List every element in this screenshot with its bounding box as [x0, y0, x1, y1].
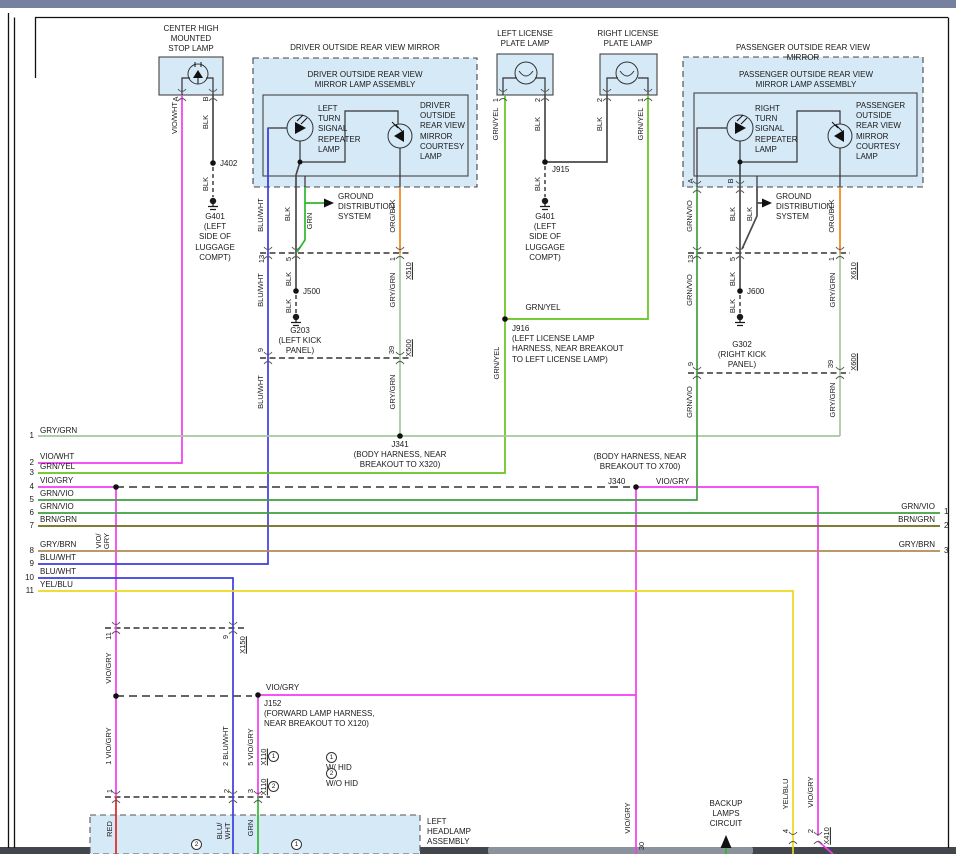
pin-1-x510: 1	[389, 257, 397, 261]
ground-distribution-label-passenger: GROUND DISTRIBUTION SYSTEM	[776, 192, 832, 223]
wire-label-blu-wht-2line: BLU/ WHT	[216, 822, 233, 839]
wiring-diagram-canvas	[0, 0, 956, 854]
pin-9-x600: 9	[687, 362, 695, 366]
bus-num-8: 8	[20, 546, 34, 555]
ground-dist-arrow-passenger	[762, 199, 772, 208]
bus-num-5: 5	[20, 495, 34, 504]
pin-2-x410: 2	[807, 829, 815, 833]
junction-j340-note: (BODY HARNESS, NEAR BREAKOUT TO X700)	[594, 452, 687, 472]
right-license-title: RIGHT LICENSE PLATE LAMP	[597, 29, 658, 49]
wire-label-blk-j600: BLK	[729, 299, 737, 313]
ground-symbol-g203	[291, 314, 301, 325]
pin-1-x610: 1	[828, 257, 836, 261]
wire-label-org-blk-pass: ORG/BLK	[828, 199, 836, 232]
left-headlamp-title: LEFT HEADLAMP ASSEMBLY	[427, 817, 471, 848]
bus-num-1: 1	[20, 431, 34, 440]
passenger-assembly-title: PASSENGER OUTSIDE REAR VIEW MIRROR LAMP …	[739, 70, 873, 90]
wire-label-blk-j915: BLK	[534, 177, 542, 191]
ground-symbol-g401-left	[208, 198, 218, 209]
wire10-blu-wht	[38, 578, 233, 854]
junction-j152-label: J152 (FORWARD LAMP HARNESS, NEAR BREAKOU…	[264, 699, 375, 730]
wire-label-blk-j500: BLK	[285, 299, 293, 313]
pin-11-x150: 11	[105, 632, 113, 640]
connector-x510-label: X510	[405, 262, 413, 280]
right-bus-num-3: 3	[944, 546, 948, 555]
component-boxes	[90, 54, 923, 854]
ground-symbol-g302	[735, 314, 745, 325]
chmsl-title: CENTER HIGH MOUNTED STOP LAMP	[163, 24, 218, 55]
headlamp-variant-1-mark: 1	[291, 839, 302, 850]
pin-2-left-license: 2	[534, 98, 542, 102]
passenger-courtesy-lamp-label: PASSENGER OUTSIDE REAR VIEW MIRROR COURT…	[856, 101, 905, 162]
bus-num-11: 11	[20, 586, 34, 595]
wire-label-blu-wht-driver: BLU/WHT	[257, 198, 265, 232]
right-bus-label-3: GRY/BRN	[855, 540, 935, 549]
wire-label-gry-grn-driver: GRY/GRN	[389, 273, 397, 308]
junction-j916-label: J916 (LEFT LICENSE LAMP HARNESS, NEAR BR…	[512, 324, 624, 365]
bus-label-8: GRY/BRN	[40, 540, 76, 549]
ground-g203-label: G203 (LEFT KICK PANEL)	[279, 326, 322, 357]
bus-num-6: 6	[20, 508, 34, 517]
wire-label-blk-below-x610: BLK	[729, 272, 737, 286]
pin-1-right-license: 1	[637, 98, 645, 102]
bus-num-7: 7	[20, 521, 34, 530]
wiring-diagram-page: CENTER HIGH MOUNTED STOP LAMP DRIVER OUT…	[0, 0, 956, 854]
grn-yel-right-license	[505, 95, 648, 319]
wire4-right-color-label: VIO/GRY	[656, 477, 689, 487]
bus-num-4: 4	[20, 482, 34, 491]
connector-x600-label: X600	[850, 353, 858, 371]
bus-label-1: GRY/GRN	[40, 426, 77, 435]
junction-j340-label: J340	[608, 477, 625, 487]
x110-variant-1-mark: 1	[268, 751, 279, 762]
wire-label-blk-chmsl: BLK	[202, 115, 210, 129]
backup-lamps-arrow	[721, 835, 732, 848]
wire-label-blk-left-license: BLK	[534, 117, 542, 131]
connector-x410-label: X410	[823, 827, 831, 845]
wire-label-vio-gry-bottom: VIO/GRY	[624, 802, 632, 833]
passenger-mirror-title: PASSENGER OUTSIDE REAR VIEW MIRROR	[727, 43, 880, 63]
wire-label-vio-gry-2line: VIO/ GRY	[95, 533, 112, 549]
dashed-ground-leads	[213, 166, 740, 313]
right-bus-num-2: 2	[944, 521, 948, 530]
x110-variant-2-mark: 2	[268, 781, 279, 792]
right-bus-label-1: GRN/VIO	[855, 502, 935, 511]
bus-label-3: GRN/YEL	[40, 462, 75, 471]
wire-label-grn-yel-below-j916: GRN/YEL	[493, 347, 501, 380]
connector-x500-label: X500	[405, 339, 413, 357]
pin-1-x110: 1	[106, 789, 114, 793]
inline-connectors	[105, 253, 850, 797]
wire-label-vio-gry-x410: VIO/GRY	[807, 776, 815, 807]
connector-x610-label: X610	[850, 262, 858, 280]
pin-13-x610: 13	[687, 255, 695, 263]
wire-label-vio-gry-below-x150: VIO/GRY	[105, 652, 113, 683]
driver-mirror-title: DRIVER OUTSIDE REAR VIEW MIRROR	[290, 43, 440, 53]
junction-j341-label: J341 (BODY HARNESS, NEAR BREAKOUT TO X32…	[354, 440, 447, 471]
wire-label-blk-driver: BLK	[284, 207, 292, 221]
legend-without-hid: 2 W/O HID	[326, 758, 358, 789]
wire-label-1-vio-gry: 1 VIO/GRY	[105, 727, 113, 764]
ground-g401-left-label: G401 (LEFT SIDE OF LUGGAGE COMPT)	[195, 212, 235, 263]
bus-label-4: VIO/GRY	[40, 476, 73, 485]
wire-label-grn-vio-mid: GRN/VIO	[686, 274, 694, 306]
pin-5-x510: 5	[285, 257, 293, 261]
junction-j500-label: J500	[303, 287, 320, 297]
wire-label-blk-right-license: BLK	[596, 117, 604, 131]
pin-4-x410: 4	[782, 829, 790, 833]
pin-5-x610: 5	[729, 257, 737, 261]
bus-num-2: 2	[20, 458, 34, 467]
wire-label-yel-blu-bottom: YEL/BLU	[782, 779, 790, 810]
circled-2-icon: 2	[326, 768, 337, 779]
pin-9-x150: 9	[222, 635, 230, 639]
bus-label-10: BLU/WHT	[40, 567, 76, 576]
bus-label-6: GRN/VIO	[40, 502, 74, 511]
pin-b-passenger: B	[727, 178, 735, 183]
pin-1-left-license: 1	[492, 98, 500, 102]
pin-2-right-license: 2	[596, 98, 604, 102]
left-license-title: LEFT LICENSE PLATE LAMP	[497, 29, 553, 49]
wire-label-gry-grn-pass: GRY/GRN	[829, 273, 837, 308]
wire-label-gry-grn-low: GRY/GRN	[389, 375, 397, 410]
wire-label-vio-wht: VIO/WHT	[171, 102, 179, 134]
pin-3-x110: 3	[247, 789, 255, 793]
pin-2-x110: 2	[223, 789, 231, 793]
grn-yel-branch-label: GRN/YEL	[525, 303, 560, 313]
pin-13-x510: 13	[258, 255, 266, 263]
junction-j402-label: J402	[220, 159, 237, 169]
wire-label-2-blu-wht: 2 BLU/WHT	[222, 726, 230, 766]
wire-label-grn-driver: GRN	[306, 213, 314, 230]
wire-label-grn-vio-low: GRN/VIO	[686, 386, 694, 418]
wire-label-blk-pass-a: BLK	[729, 207, 737, 221]
driver-courtesy-lamp-label: DRIVER OUTSIDE REAR VIEW MIRROR COURTESY…	[420, 101, 465, 162]
pin-9-x500: 9	[257, 348, 265, 352]
ground-distribution-label-driver: GROUND DISTRIBUTION SYSTEM	[338, 192, 394, 223]
bus-num-9: 9	[20, 559, 34, 568]
driver-assembly-title: DRIVER OUTSIDE REAR VIEW MIRROR LAMP ASS…	[307, 70, 422, 90]
ground-g401-mid-label: G401 (LEFT SIDE OF LUGGAGE COMPT)	[525, 212, 565, 263]
junction-j600-label: J600	[747, 287, 764, 297]
junction-j915-label: J915	[552, 165, 569, 175]
j152-wire-color-label: VIO/GRY	[266, 683, 299, 693]
wire-label-gry-grn-pass-low: GRY/GRN	[829, 383, 837, 418]
bus-num-10: 10	[20, 573, 34, 582]
backup-lamps-label: BACKUP LAMPS CIRCUIT	[710, 799, 743, 830]
left-turn-lamp-label: LEFT TURN SIGNAL REPEATER LAMP	[318, 104, 361, 155]
wire-label-blu-wht-low: BLU/WHT	[257, 375, 265, 409]
wire-label-grn-yel-right: GRN/YEL	[637, 108, 645, 141]
wire9-blu-wht	[38, 128, 268, 564]
wire-label-red: RED	[106, 821, 114, 837]
ground-dist-arrow-driver	[324, 199, 334, 208]
wire-label-grn-headlamp: GRN	[247, 820, 255, 837]
pin-39-x500: 39	[388, 346, 396, 354]
grn-vio-wires	[38, 187, 940, 513]
right-bus-num-1: 1	[944, 507, 948, 516]
pin-b-chmsl: B	[202, 96, 210, 101]
wire-label-org-blk-driver: ORG/BLK	[389, 199, 397, 232]
bus-label-2: VIO/WHT	[40, 452, 74, 461]
wire-label-5-vio-gry: 5 VIO/GRY	[247, 728, 255, 765]
right-bus-label-2: BRN/GRN	[855, 515, 935, 524]
connector-x110-label-hid: X110	[260, 749, 268, 766]
wire-label-blk-j402: BLK	[202, 177, 210, 191]
pin-a-chmsl: A	[172, 96, 180, 101]
bus-num-3: 3	[20, 468, 34, 477]
pin-a-passenger: A	[687, 178, 695, 183]
wire-vio-wht	[38, 95, 182, 463]
bus-label-9: BLU/WHT	[40, 553, 76, 562]
wire-label-blk-pass-b: BLK	[746, 207, 754, 221]
connector-x110-label-nohid: X110	[260, 779, 268, 796]
connector-x150-label: X150	[239, 636, 247, 654]
right-turn-lamp-label: RIGHT TURN SIGNAL REPEATER LAMP	[755, 104, 798, 155]
pin-30-bottom: 30	[638, 842, 646, 850]
wire-label-blk-below-x510: BLK	[285, 272, 293, 286]
wire-label-blu-wht-mid: BLU/WHT	[257, 273, 265, 307]
wire-label-grn-vio-pass: GRN/VIO	[686, 200, 694, 232]
wire-label-grn-yel-left: GRN/YEL	[492, 108, 500, 141]
bus-label-7: BRN/GRN	[40, 515, 77, 524]
vio-wires	[38, 95, 833, 854]
headlamp-variant-2-mark: 2	[191, 839, 202, 850]
pin-39-x600: 39	[827, 360, 835, 368]
bus-label-5: GRN/VIO	[40, 489, 74, 498]
ground-g302-label: G302 (RIGHT KICK PANEL)	[718, 340, 766, 371]
bus-label-11: YEL/BLU	[40, 580, 73, 589]
org-blk-wires	[400, 187, 840, 253]
ground-symbol-g401-mid	[540, 198, 550, 209]
